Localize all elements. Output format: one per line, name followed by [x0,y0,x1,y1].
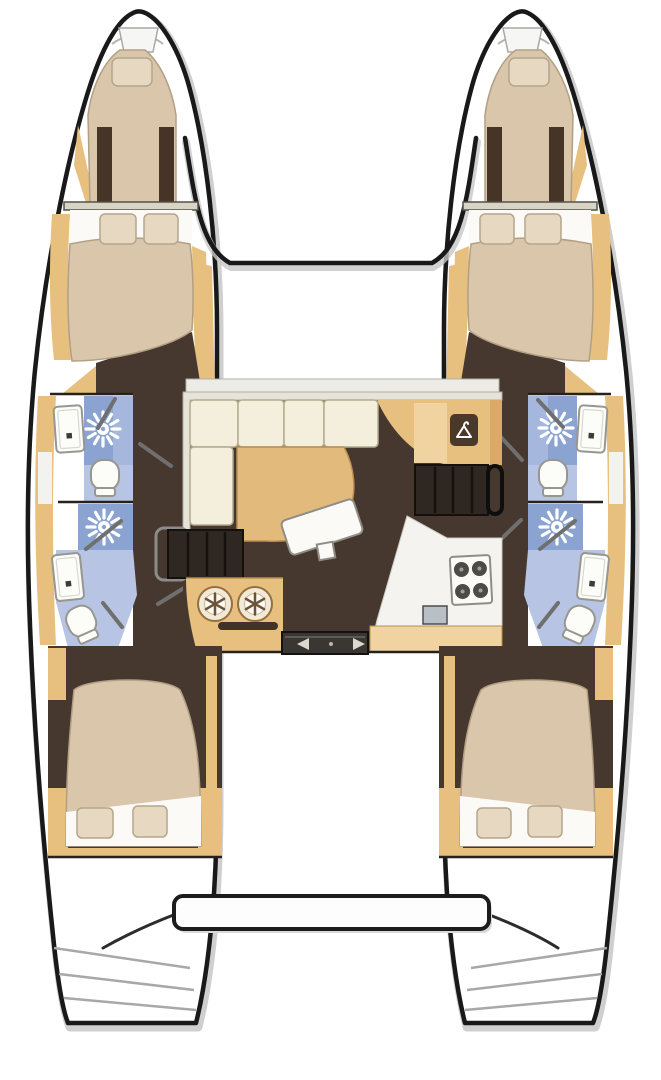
locker-panel [159,127,174,205]
galley-sink [198,587,232,621]
trim [48,848,222,856]
toilet [539,460,567,496]
sink [577,553,610,602]
pillow [509,58,549,86]
trim [453,246,469,332]
sofa-cushion [190,447,233,525]
sofa-cushion [238,400,284,447]
cabinet-panel [414,403,447,463]
companionway-starboard [415,465,502,515]
pillow [477,808,511,838]
locker-panel [487,127,502,205]
trim [595,648,613,700]
sofa-cushion [284,400,324,447]
hull-window [38,452,52,504]
trim [605,396,626,645]
pillow [525,214,561,244]
platform [174,896,489,929]
sofa-cushion [324,400,378,447]
galley-sink-small [423,606,447,624]
catamaran-floor-plan [0,0,661,1080]
drainer [218,622,278,630]
hull-window [609,452,623,504]
crossbeam-line [185,138,476,263]
bow-hatch [119,28,158,52]
cabinet-edge [490,400,502,465]
port-aft-cabin [48,646,222,857]
pillow [528,806,562,837]
galley-sink [238,587,272,621]
pillow [144,214,178,244]
sink [52,553,85,602]
bulkhead [463,202,597,210]
pillow [480,214,514,244]
pillow [133,806,167,837]
door-dot [329,642,333,646]
port-corridor [133,392,185,654]
trim [439,848,613,856]
sink [53,405,84,453]
trim [48,648,66,700]
locker-panel [549,127,564,205]
bed-post [593,788,613,854]
aft-platform [174,896,492,933]
companionway-steps [168,530,243,578]
table-leg [317,542,336,561]
foredeck [185,138,477,394]
starboard-aft-cabin [439,646,613,857]
wardrobe-hanger-icon [450,414,478,446]
cockpit-side-trim [444,656,455,790]
pillow [112,58,152,86]
sink [576,405,607,453]
bulkhead [64,202,198,210]
pillow [100,214,136,244]
trim [35,396,56,645]
trim [192,246,208,332]
pillow [77,808,113,838]
front-window-band [186,379,499,392]
sofa-cushion [190,400,238,447]
stove [450,555,492,605]
toilet [91,460,119,496]
bow-hatch [503,28,542,52]
locker-panel [97,127,112,205]
cockpit-side-trim [206,656,217,790]
floor-plan-svg [0,0,661,1080]
companionway-steps [415,465,488,515]
companionway-port [156,528,243,580]
bed-post [48,788,68,854]
